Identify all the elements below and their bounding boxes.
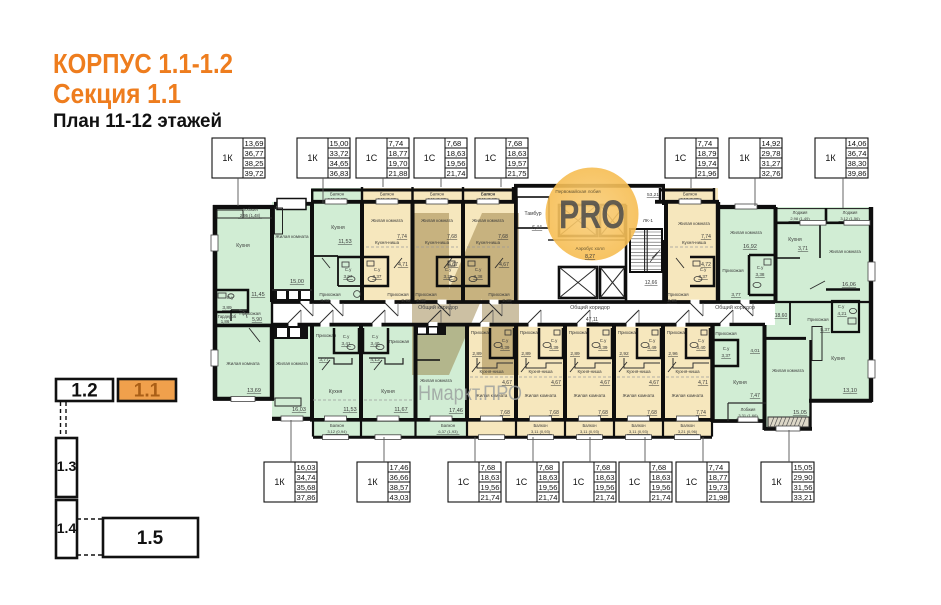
svg-text:16,03: 16,03 [292, 407, 306, 413]
svg-text:Кухня-ниша: Кухня-ниша [626, 369, 651, 374]
svg-text:31,27: 31,27 [762, 159, 781, 168]
svg-text:Прихожая: Прихожая [667, 292, 689, 297]
svg-text:33,72: 33,72 [330, 149, 349, 158]
svg-text:21,88: 21,88 [389, 169, 408, 178]
svg-text:Прихожая: Прихожая [722, 268, 744, 273]
svg-text:2,96: 2,96 [667, 298, 677, 304]
svg-text:21,74: 21,74 [652, 493, 671, 502]
svg-text:6,37 (1,93): 6,37 (1,93) [438, 429, 458, 434]
svg-text:1.3: 1.3 [57, 458, 77, 474]
svg-text:Кухня: Кухня [236, 243, 250, 249]
svg-text:13,69: 13,69 [245, 139, 264, 148]
svg-text:1К: 1К [739, 153, 750, 163]
svg-text:36,66: 36,66 [390, 473, 409, 482]
svg-text:11,45: 11,45 [251, 292, 264, 298]
svg-text:Балкон: Балкон [680, 423, 695, 428]
svg-text:Кухня: Кухня [331, 225, 345, 231]
svg-text:Кухня: Кухня [788, 237, 802, 243]
svg-text:Прихожая: Прихожая [807, 317, 829, 322]
svg-text:19,74: 19,74 [698, 159, 717, 168]
svg-text:34,74: 34,74 [297, 473, 316, 482]
svg-text:Кухня-ниша: Кухня-ниша [425, 240, 450, 245]
svg-text:34,65: 34,65 [330, 159, 349, 168]
svg-text:Кухня-ниша: Кухня-ниша [479, 369, 504, 374]
svg-text:19,56: 19,56 [539, 483, 558, 492]
svg-text:15,00: 15,00 [330, 139, 349, 148]
svg-text:7,68: 7,68 [596, 463, 611, 472]
svg-text:4,13: 4,13 [370, 357, 380, 363]
svg-text:Жилая комната: Жилая комната [623, 393, 655, 398]
svg-text:1.5: 1.5 [137, 528, 164, 549]
svg-text:Кухня-ниша: Кухня-ниша [528, 369, 553, 374]
svg-text:Прихожая: Прихожая [667, 330, 688, 335]
svg-text:Нмаркт.ПРО: Нмаркт.ПРО [418, 381, 522, 405]
svg-text:4,71: 4,71 [398, 262, 408, 268]
svg-text:18,77: 18,77 [389, 149, 408, 158]
svg-text:Кухня-ниша: Кухня-ниша [682, 240, 707, 245]
svg-text:1К: 1К [307, 153, 318, 163]
svg-text:С.у: С.у [372, 334, 379, 339]
svg-text:Прихожая: Прихожая [239, 311, 261, 316]
svg-text:Секция 1.1: Секция 1.1 [53, 78, 181, 109]
svg-text:3,41: 3,41 [342, 341, 351, 346]
svg-text:С.у: С.у [475, 267, 482, 272]
svg-text:11,53: 11,53 [338, 239, 351, 245]
svg-text:47,11: 47,11 [586, 317, 598, 323]
svg-text:Тамбур: Тамбур [525, 211, 542, 217]
svg-text:7,74: 7,74 [698, 139, 713, 148]
svg-text:3,21 (0,96): 3,21 (0,96) [678, 429, 698, 434]
svg-text:21,74: 21,74 [447, 169, 466, 178]
svg-text:7,68: 7,68 [647, 410, 657, 416]
svg-text:С.у: С.у [227, 295, 234, 300]
svg-text:Прихожая: Прихожая [618, 330, 639, 335]
svg-text:1С: 1С [675, 153, 687, 163]
svg-text:21,74: 21,74 [596, 493, 615, 502]
svg-text:Кухня: Кухня [831, 356, 845, 362]
svg-text:Прихожая: Прихожая [471, 330, 492, 335]
svg-text:17,46: 17,46 [390, 463, 409, 472]
svg-text:4,67: 4,67 [600, 380, 610, 386]
svg-text:1К: 1К [222, 153, 233, 163]
svg-text:36,77: 36,77 [245, 149, 264, 158]
svg-text:7,68: 7,68 [652, 463, 667, 472]
svg-text:4,71: 4,71 [698, 380, 708, 386]
svg-text:36,74: 36,74 [848, 149, 867, 158]
svg-text:Лоджия: Лоджия [793, 210, 808, 215]
svg-text:6,44: 6,44 [532, 225, 542, 231]
svg-text:Прихожая: Прихожая [520, 330, 541, 335]
svg-text:1К: 1К [771, 477, 782, 487]
svg-text:1С: 1С [573, 477, 585, 487]
svg-text:38,30: 38,30 [848, 159, 867, 168]
svg-text:3,38: 3,38 [474, 274, 483, 279]
svg-text:21,98: 21,98 [709, 493, 728, 502]
svg-text:С.у: С.у [757, 265, 764, 270]
svg-text:19,56: 19,56 [652, 483, 671, 492]
svg-text:Общий коридор: Общий коридор [418, 304, 458, 311]
svg-text:3,37: 3,37 [373, 274, 382, 279]
svg-text:19,70: 19,70 [389, 159, 408, 168]
svg-text:1С: 1С [629, 477, 641, 487]
svg-text:16,92: 16,92 [743, 244, 757, 250]
svg-text:14,92: 14,92 [762, 139, 781, 148]
svg-text:Кухня: Кухня [381, 389, 395, 395]
svg-text:18,63: 18,63 [508, 149, 527, 158]
svg-text:4,01: 4,01 [750, 348, 760, 354]
svg-text:Аэробус холл: Аэробус холл [575, 246, 604, 251]
svg-text:5,90: 5,90 [252, 317, 262, 323]
svg-text:7,74: 7,74 [709, 463, 724, 472]
svg-text:Балкон: Балкон [330, 423, 345, 428]
svg-text:7,68: 7,68 [539, 463, 554, 472]
svg-text:11,53: 11,53 [343, 407, 356, 413]
svg-text:С.у: С.у [343, 334, 350, 339]
svg-text:13,10: 13,10 [843, 388, 857, 394]
svg-text:1.1: 1.1 [134, 381, 161, 402]
svg-text:С.у: С.у [698, 338, 705, 343]
svg-text:С.у: С.у [374, 267, 381, 272]
svg-text:Жилая комната: Жилая комната [574, 393, 606, 398]
svg-text:21,74: 21,74 [539, 493, 558, 502]
svg-text:18,63: 18,63 [447, 149, 466, 158]
svg-text:С.у: С.у [600, 338, 607, 343]
svg-text:С.у: С.у [649, 338, 656, 343]
svg-text:43,03: 43,03 [390, 493, 409, 502]
svg-text:Жилая комната: Жилая комната [371, 218, 403, 223]
svg-text:КОРПУС 1.1-1.2: КОРПУС 1.1-1.2 [53, 48, 233, 79]
svg-text:1С: 1С [366, 153, 378, 163]
svg-text:37,86: 37,86 [297, 493, 316, 502]
svg-text:1К: 1К [825, 153, 836, 163]
svg-text:3,25: 3,25 [444, 274, 453, 279]
svg-text:Балкон: Балкон [481, 191, 496, 196]
svg-text:ЛК-1: ЛК-1 [643, 218, 654, 224]
svg-text:Лоджия: Лоджия [843, 210, 858, 215]
svg-text:21,74: 21,74 [481, 493, 500, 502]
svg-text:3,40: 3,40 [371, 341, 380, 346]
svg-text:Жилая комната: Жилая комната [421, 218, 453, 223]
svg-text:2,89: 2,89 [570, 351, 580, 357]
svg-text:Жилая комната: Жилая комната [672, 393, 704, 398]
svg-text:Жилая комната: Жилая комната [226, 361, 260, 366]
svg-text:16,03: 16,03 [297, 463, 316, 472]
svg-text:С.у: С.у [700, 267, 707, 272]
svg-text:С.у: С.у [551, 338, 558, 343]
svg-text:7,68: 7,68 [549, 410, 559, 416]
svg-text:Жилая комната: Жилая комната [472, 218, 504, 223]
svg-text:17,46: 17,46 [449, 408, 463, 414]
svg-text:1К: 1К [274, 477, 285, 487]
svg-text:7,68: 7,68 [508, 139, 523, 148]
svg-text:13,69: 13,69 [247, 388, 261, 394]
svg-text:19,57: 19,57 [508, 159, 527, 168]
svg-text:С.у: С.у [445, 267, 452, 272]
svg-text:7,74: 7,74 [389, 139, 404, 148]
svg-text:15,05: 15,05 [794, 463, 813, 472]
svg-text:2,89: 2,89 [416, 298, 426, 304]
svg-text:18,60: 18,60 [775, 313, 788, 319]
svg-text:4,21: 4,21 [838, 311, 847, 316]
svg-text:1,86: 1,86 [221, 319, 230, 324]
svg-text:Жилая комната: Жилая комната [829, 249, 861, 254]
svg-text:3,49: 3,49 [648, 345, 657, 350]
svg-text:Лобжия: Лобжия [741, 407, 756, 412]
svg-text:4,67: 4,67 [499, 262, 509, 268]
svg-text:Прихожая: Прихожая [415, 292, 437, 297]
svg-text:1К: 1К [367, 477, 378, 487]
svg-text:Общий коридор: Общий коридор [570, 304, 610, 311]
svg-text:PRO: PRO [559, 193, 625, 237]
svg-text:2,89: 2,89 [521, 351, 531, 357]
svg-text:18,77: 18,77 [709, 473, 728, 482]
svg-text:Жилая комната: Жилая комната [678, 221, 710, 226]
svg-text:3,71: 3,71 [798, 246, 808, 252]
svg-text:Балкон: Балкон [582, 423, 597, 428]
svg-text:19,56: 19,56 [596, 483, 615, 492]
svg-text:Балкон: Балкон [533, 423, 548, 428]
svg-text:3,11 (0,93): 3,11 (0,93) [580, 429, 600, 434]
svg-text:2,89: 2,89 [472, 351, 482, 357]
svg-text:4,67: 4,67 [551, 380, 561, 386]
svg-text:С.у: С.у [345, 267, 352, 272]
svg-text:18,63: 18,63 [481, 473, 500, 482]
svg-text:3,39: 3,39 [599, 345, 608, 350]
svg-text:38,57: 38,57 [390, 483, 409, 492]
svg-text:Прихожая: Прихожая [715, 331, 737, 336]
svg-text:Прихожая: Прихожая [387, 292, 409, 297]
svg-text:1С: 1С [424, 153, 436, 163]
svg-text:1С: 1С [458, 477, 470, 487]
svg-text:Кухня: Кухня [733, 380, 747, 386]
svg-text:Жилая комната: Жилая комната [276, 361, 308, 366]
svg-text:Жилая комната: Жилая комната [275, 234, 309, 239]
svg-text:Прихожая: Прихожая [569, 330, 590, 335]
svg-text:3,97: 3,97 [344, 274, 353, 279]
svg-text:С.у: С.у [502, 338, 509, 343]
svg-text:С.у: С.у [723, 346, 730, 351]
svg-text:Лобжия: Лобжия [242, 207, 258, 212]
svg-text:29,78: 29,78 [762, 149, 781, 158]
svg-text:2,96: 2,96 [668, 351, 678, 357]
svg-text:11,67: 11,67 [394, 407, 407, 413]
svg-text:33,21: 33,21 [794, 493, 813, 502]
svg-text:1С: 1С [516, 477, 528, 487]
svg-text:3,39: 3,39 [550, 345, 559, 350]
svg-text:1.2: 1.2 [71, 381, 97, 402]
svg-text:15,05: 15,05 [793, 410, 807, 416]
svg-text:3,40: 3,40 [697, 345, 706, 350]
svg-text:18,63: 18,63 [539, 473, 558, 482]
svg-text:12,66: 12,66 [645, 280, 658, 286]
svg-text:15,00: 15,00 [290, 279, 304, 285]
svg-text:Кухня-ниша: Кухня-ниша [476, 240, 501, 245]
svg-text:4,67: 4,67 [649, 380, 659, 386]
svg-text:3,12 (0,94): 3,12 (0,94) [327, 429, 347, 434]
svg-text:3,37: 3,37 [699, 274, 708, 279]
svg-text:36,83: 36,83 [330, 169, 349, 178]
svg-text:Прихожая: Прихожая [488, 292, 510, 297]
svg-text:2,89: 2,89 [502, 298, 512, 304]
svg-text:Кухня-ниша: Кухня-ниша [675, 369, 700, 374]
svg-text:3,37: 3,37 [722, 353, 731, 358]
svg-text:Первомайская лобия: Первомайская лобия [555, 188, 601, 194]
svg-text:39,72: 39,72 [245, 169, 264, 178]
svg-text:29,90: 29,90 [794, 473, 813, 482]
svg-text:Жилая комната: Жилая комната [525, 393, 557, 398]
svg-text:14,06: 14,06 [848, 139, 867, 148]
svg-text:19,56: 19,56 [447, 159, 466, 168]
svg-text:19,56: 19,56 [481, 483, 500, 492]
svg-text:16,06: 16,06 [842, 282, 856, 288]
svg-text:Жилая комната: Жилая комната [772, 368, 804, 373]
svg-text:8,27: 8,27 [585, 254, 595, 260]
svg-text:Кухня: Кухня [329, 389, 343, 395]
svg-text:Жилая комната: Жилая комната [730, 230, 762, 235]
svg-text:31,56: 31,56 [794, 483, 813, 492]
svg-text:1С: 1С [686, 477, 698, 487]
svg-text:7,68: 7,68 [598, 410, 608, 416]
svg-text:53,21: 53,21 [647, 192, 659, 198]
svg-text:7,68: 7,68 [481, 463, 496, 472]
svg-text:32,76: 32,76 [762, 169, 781, 178]
svg-text:3,39: 3,39 [501, 345, 510, 350]
svg-text:1С: 1С [485, 153, 497, 163]
svg-text:2,92: 2,92 [619, 351, 629, 357]
svg-text:18,63: 18,63 [652, 473, 671, 482]
svg-text:Кухня-ниша: Кухня-ниша [375, 240, 400, 245]
svg-text:39,86: 39,86 [848, 169, 867, 178]
svg-text:2,92: 2,92 [401, 298, 411, 304]
svg-text:План 11-12 этажей: План 11-12 этажей [53, 111, 222, 132]
svg-text:21,96: 21,96 [698, 169, 717, 178]
svg-text:7,74: 7,74 [696, 410, 706, 416]
svg-text:7,68: 7,68 [447, 139, 462, 148]
svg-text:18,63: 18,63 [596, 473, 615, 482]
svg-text:3,82: 3,82 [320, 298, 330, 304]
svg-text:3,77: 3,77 [319, 357, 329, 363]
svg-text:Общий коридор: Общий коридор [715, 304, 755, 311]
svg-text:7,68: 7,68 [500, 410, 510, 416]
svg-text:1.4: 1.4 [57, 520, 77, 536]
svg-text:19,73: 19,73 [709, 483, 728, 492]
svg-text:Балкон: Балкон [631, 423, 646, 428]
svg-text:21,75: 21,75 [508, 169, 527, 178]
svg-text:Балкон: Балкон [441, 423, 456, 428]
svg-text:7,47: 7,47 [750, 393, 760, 399]
svg-text:Кухня-ниша: Кухня-ниша [577, 369, 602, 374]
svg-text:Прихожая: Прихожая [389, 339, 410, 344]
svg-text:3,77: 3,77 [731, 292, 741, 298]
svg-text:35,68: 35,68 [297, 483, 316, 492]
svg-text:3,11 (0,93): 3,11 (0,93) [629, 429, 649, 434]
svg-text:38,25: 38,25 [245, 159, 264, 168]
svg-text:Прихожая: Прихожая [319, 292, 341, 297]
svg-text:18,79: 18,79 [698, 149, 717, 158]
svg-text:С.у: С.у [838, 304, 845, 309]
svg-text:3,38: 3,38 [756, 272, 765, 277]
svg-text:3,11 (0,93): 3,11 (0,93) [531, 429, 551, 434]
